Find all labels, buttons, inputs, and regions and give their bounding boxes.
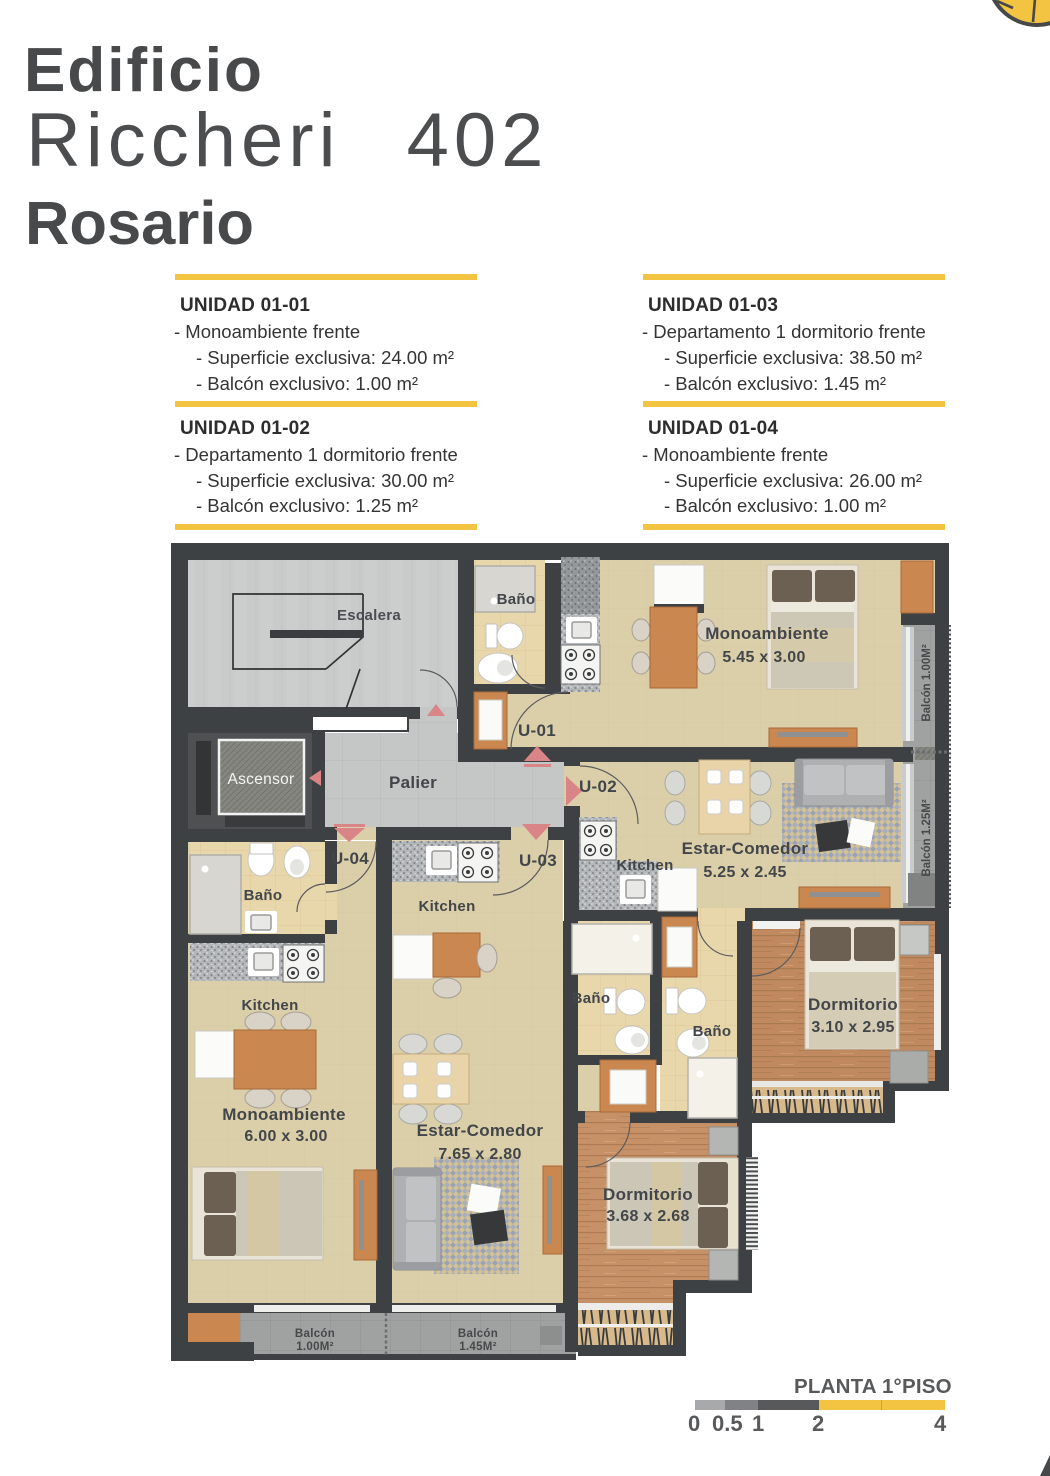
svg-text:3.68 x 2.68: 3.68 x 2.68 <box>606 1208 689 1225</box>
svg-text:U-02: U-02 <box>579 777 617 796</box>
svg-text:1.45M²: 1.45M² <box>459 1341 497 1353</box>
svg-text:Palier: Palier <box>389 773 437 792</box>
svg-text:Balcón: Balcón <box>295 1328 335 1340</box>
svg-text:3.10 x 2.95: 3.10 x 2.95 <box>811 1019 894 1036</box>
svg-text:7.65 x 2.80: 7.65 x 2.80 <box>438 1146 521 1163</box>
svg-text:U-03: U-03 <box>519 851 557 870</box>
svg-text:Kitchen: Kitchen <box>616 857 673 874</box>
svg-text:Dormitorio: Dormitorio <box>808 995 898 1014</box>
svg-text:U-01: U-01 <box>518 721 556 740</box>
svg-text:Baño: Baño <box>497 591 536 608</box>
svg-text:5.25 x 2.45: 5.25 x 2.45 <box>703 864 786 881</box>
svg-text:Ascensor: Ascensor <box>227 771 294 788</box>
svg-text:Estar-Comedor: Estar-Comedor <box>682 839 809 858</box>
svg-text:Baño: Baño <box>693 1023 732 1040</box>
svg-text:Monoambiente: Monoambiente <box>705 624 829 643</box>
svg-text:5.45 x 3.00: 5.45 x 3.00 <box>722 649 805 666</box>
svg-text:Estar-Comedor: Estar-Comedor <box>417 1121 544 1140</box>
svg-text:6.00 x 3.00: 6.00 x 3.00 <box>244 1128 327 1145</box>
svg-text:Balcón 1.25M²: Balcón 1.25M² <box>921 799 933 876</box>
svg-text:Escalera: Escalera <box>337 607 401 624</box>
svg-text:Balcón 1.00M²: Balcón 1.00M² <box>921 644 933 721</box>
svg-text:Kitchen: Kitchen <box>241 997 298 1014</box>
svg-text:Dormitorio: Dormitorio <box>603 1185 693 1204</box>
svg-text:1.00M²: 1.00M² <box>296 1341 334 1353</box>
svg-text:U-04: U-04 <box>331 849 369 868</box>
svg-text:Baño: Baño <box>244 887 283 904</box>
svg-text:Balcón: Balcón <box>458 1328 498 1340</box>
svg-text:Kitchen: Kitchen <box>418 898 475 915</box>
svg-text:Baño: Baño <box>572 990 611 1007</box>
svg-text:Monoambiente: Monoambiente <box>222 1105 346 1124</box>
